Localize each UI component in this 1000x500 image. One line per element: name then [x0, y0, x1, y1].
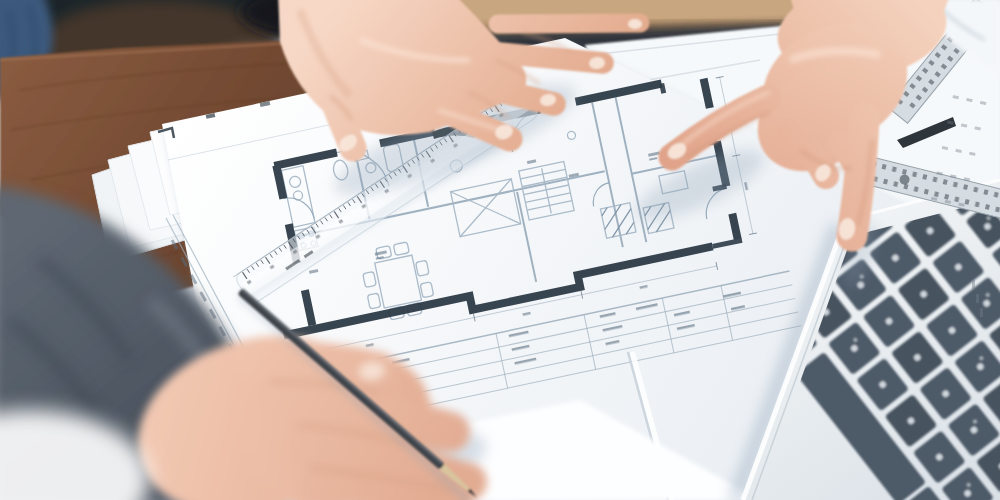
scene-canvas — [0, 0, 1000, 500]
photo-scene — [0, 0, 1000, 500]
ring-finger — [468, 50, 603, 63]
pinky-finger — [498, 23, 640, 24]
